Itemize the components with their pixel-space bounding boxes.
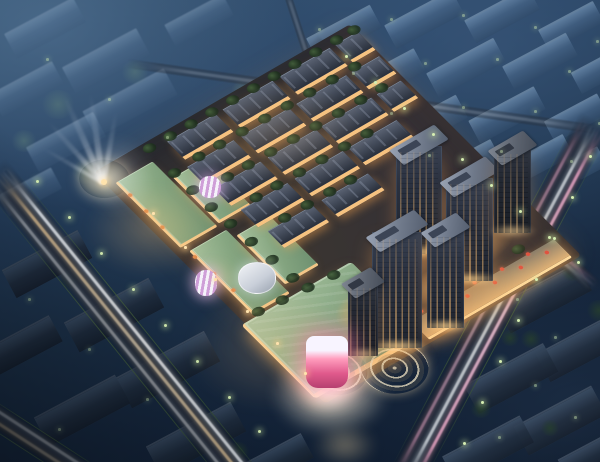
street-lamp [535, 278, 538, 281]
street-lamp [498, 436, 501, 439]
street-lamp [228, 396, 231, 399]
street-lamp [352, 72, 355, 75]
street-lamp [68, 216, 71, 219]
street-lamp [88, 348, 91, 351]
street-lamp [490, 184, 493, 187]
street-lamp [571, 196, 574, 199]
street-lamp [553, 237, 556, 240]
street-lamp [534, 384, 537, 387]
street-lamp [463, 442, 466, 445]
street-lamp [432, 133, 435, 136]
street-lamp [574, 416, 577, 419]
street-lamp [403, 107, 406, 110]
street-lamp [428, 154, 431, 157]
street-lamp [196, 360, 199, 363]
street-lamp [577, 261, 580, 264]
street-lamp [481, 401, 484, 404]
street-lamp [46, 58, 49, 61]
street-lamp [390, 112, 393, 115]
street-lamp [345, 55, 348, 58]
street-lamp [424, 62, 427, 65]
street-lamp [568, 70, 571, 73]
street-lamp [304, 372, 307, 375]
street-lamp [519, 210, 522, 213]
street-lamp [166, 136, 169, 139]
street-lamp [214, 278, 217, 281]
street-lamp [146, 398, 149, 401]
street-lamp [548, 236, 551, 239]
aerial-night-city-rendering [0, 0, 600, 462]
street-lamp [164, 324, 167, 327]
street-lamp [108, 98, 111, 101]
street-lamp [496, 58, 499, 61]
street-lamp [58, 428, 61, 431]
street-lamp [517, 319, 520, 322]
street-lamp [499, 360, 502, 363]
street-lamp [246, 310, 249, 313]
street-lamp [101, 179, 107, 185]
street-lamp [570, 160, 573, 163]
street-lamp [184, 246, 187, 249]
street-lamp [461, 158, 464, 161]
street-lamp [318, 28, 321, 31]
street-lamp [462, 106, 465, 109]
street-lamp [36, 180, 39, 183]
street-lamp [390, 18, 393, 21]
street-lamp [276, 342, 279, 345]
street-lamp [596, 40, 599, 43]
street-lamp [152, 212, 155, 215]
street-lamp [554, 336, 557, 339]
street-lamp [374, 81, 377, 84]
street-lamp [534, 110, 537, 113]
street-lamps-layer [0, 0, 600, 462]
street-lamp [589, 155, 592, 158]
street-lamp [100, 252, 103, 255]
street-lamp [516, 298, 519, 301]
street-lamp [500, 150, 503, 153]
street-lamp [258, 430, 261, 433]
street-lamp [132, 288, 135, 291]
street-lamp [534, 26, 537, 29]
street-lamp [462, 14, 465, 17]
street-lamp [28, 298, 31, 301]
